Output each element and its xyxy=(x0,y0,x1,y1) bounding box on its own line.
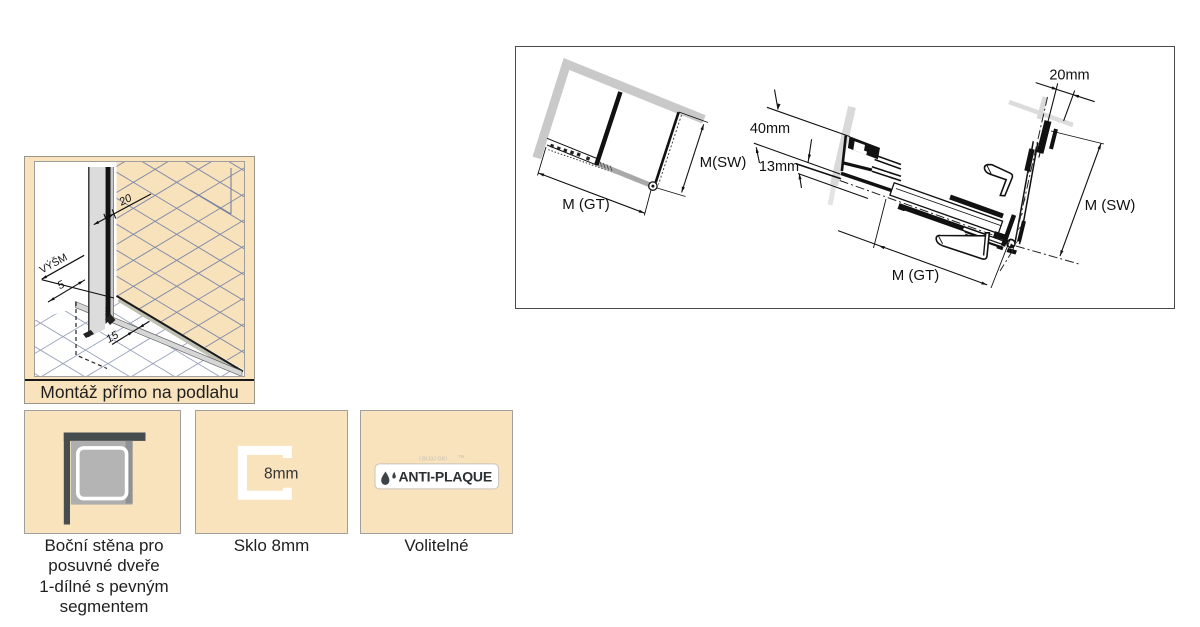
svg-text:M (GT): M (GT) xyxy=(562,196,609,213)
svg-text:M(SW): M(SW) xyxy=(700,154,747,171)
svg-text:40mm: 40mm xyxy=(750,121,790,137)
svg-text:5: 5 xyxy=(55,278,67,292)
svg-text:20mm: 20mm xyxy=(1049,68,1089,84)
svg-text:TM: TM xyxy=(458,454,465,459)
svg-text:8mm: 8mm xyxy=(264,466,298,483)
svg-text:ANTI-PLAQUE: ANTI-PLAQUE xyxy=(399,469,492,485)
svg-text:I.BIJ3J GKI: I.BIJ3J GKI xyxy=(419,457,447,463)
svg-text:M (SW): M (SW) xyxy=(1085,197,1136,214)
svg-text:M (GT): M (GT) xyxy=(892,267,939,284)
svg-text:13mm: 13mm xyxy=(759,159,799,175)
